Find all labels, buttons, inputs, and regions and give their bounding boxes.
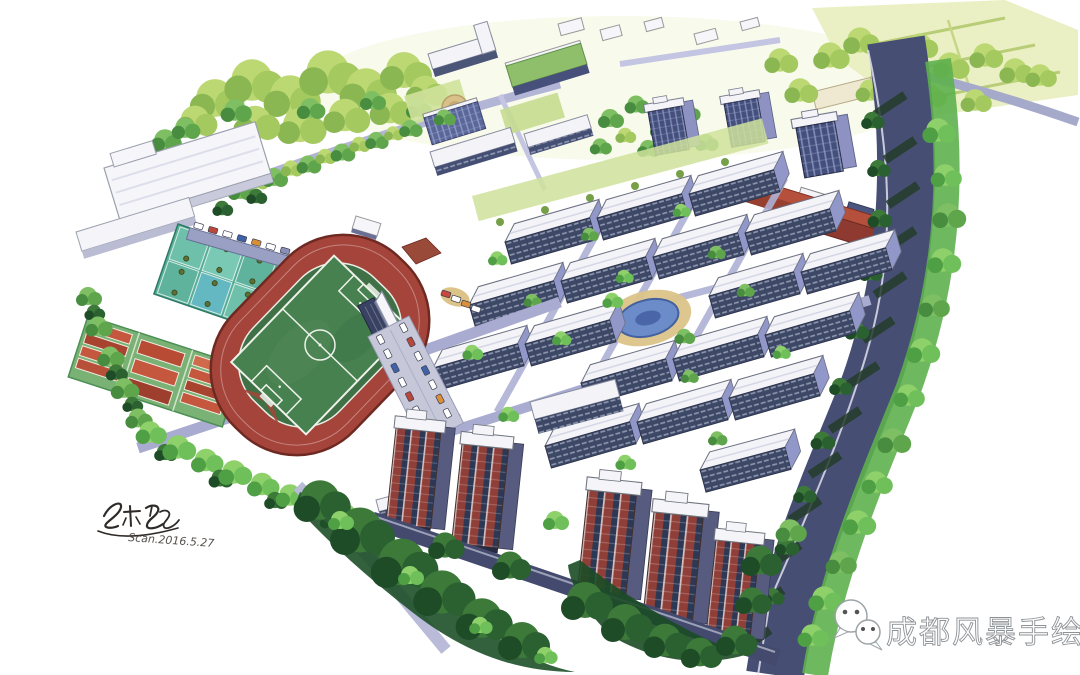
residential-tower <box>704 520 776 644</box>
watermark-text: 成都风暴手绘 <box>886 615 1080 651</box>
aerial-rendering-canvas: Scan.2016.5.27 成都风暴手绘 <box>0 0 1080 675</box>
residential-tower <box>449 423 525 555</box>
rendering-svg: Scan.2016.5.27 成都风暴手绘 <box>0 0 1080 675</box>
residential-tower <box>383 408 456 535</box>
